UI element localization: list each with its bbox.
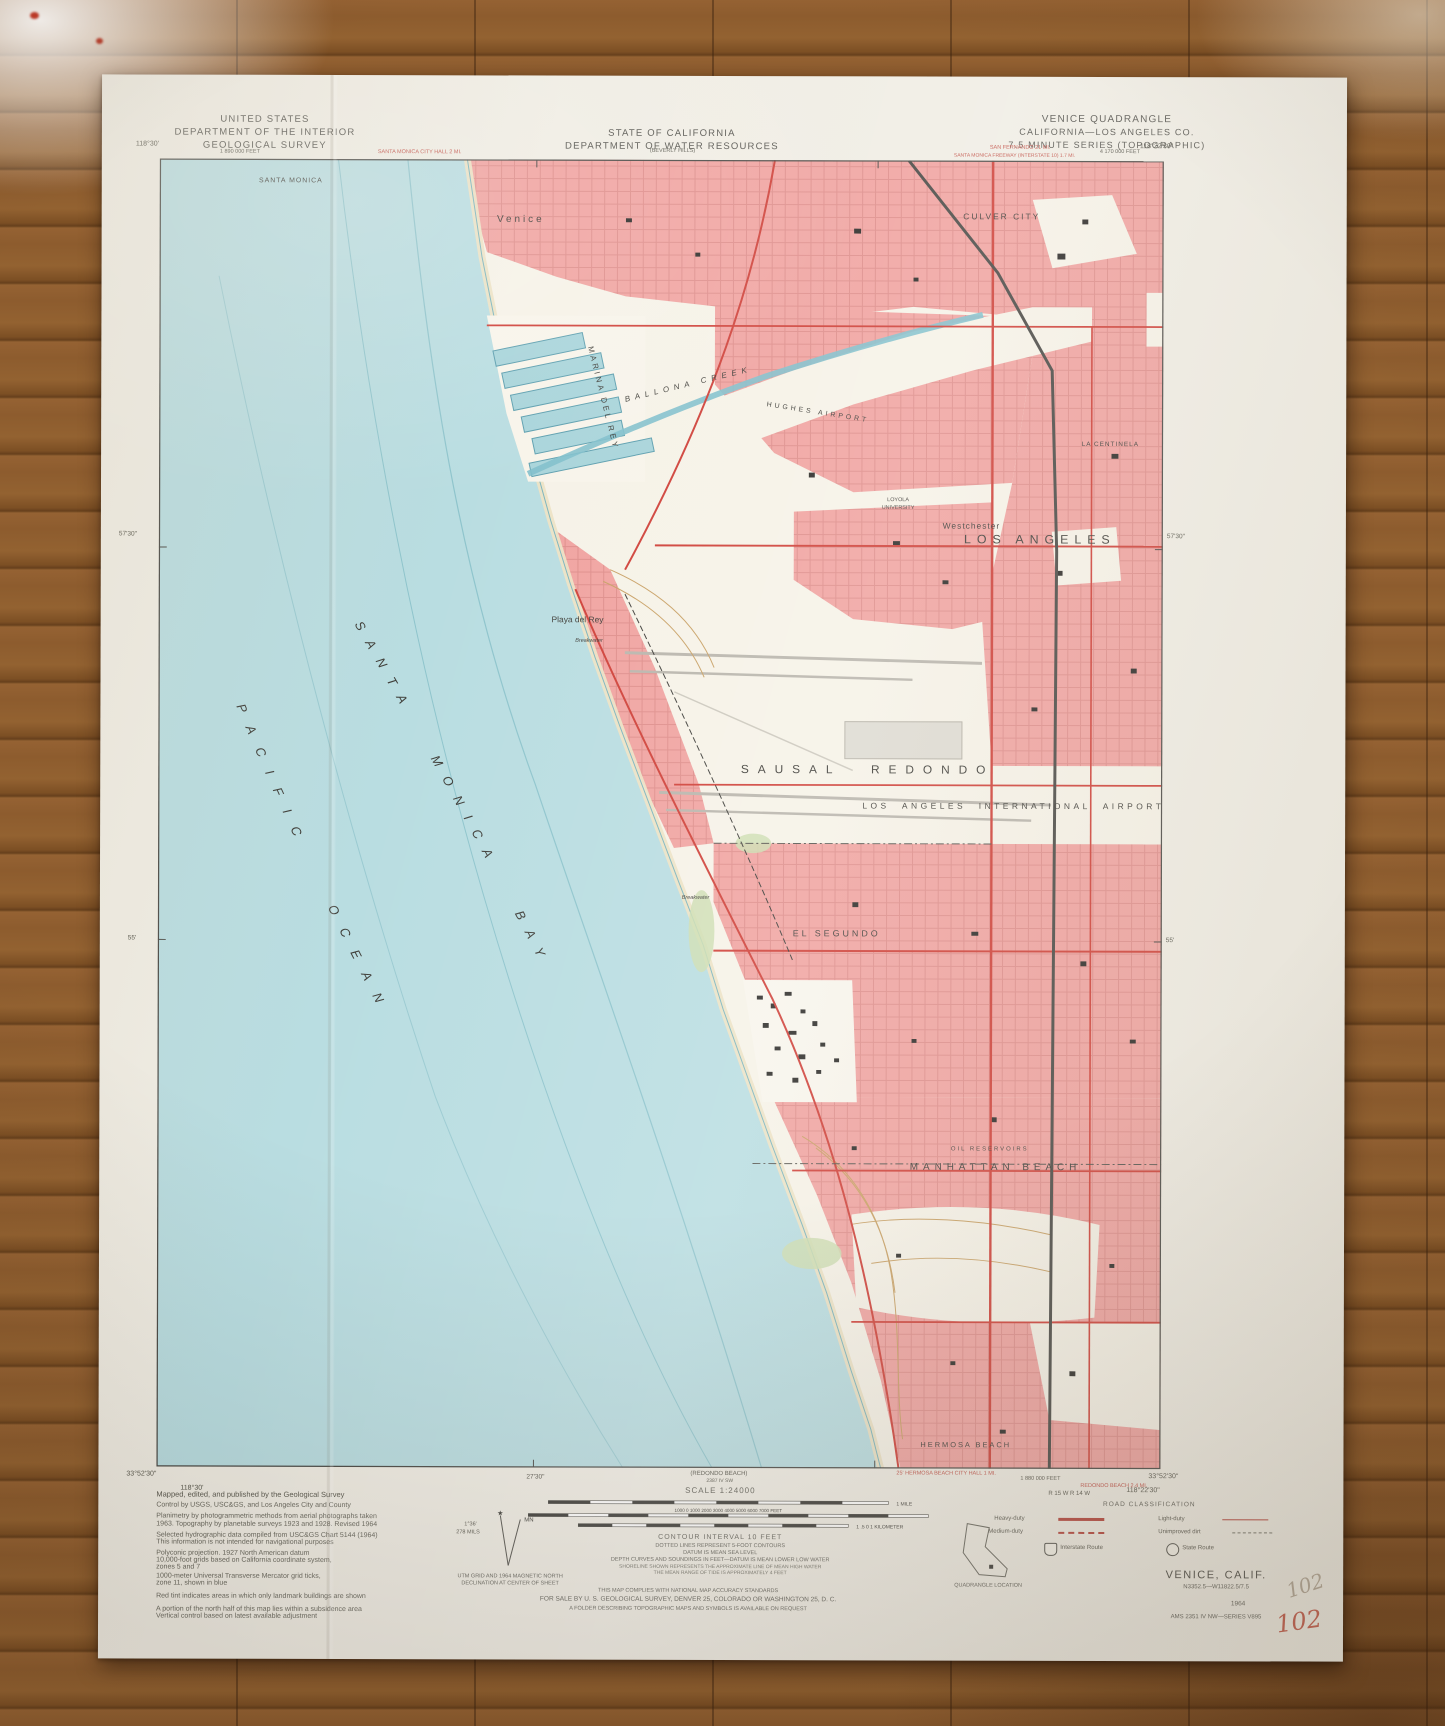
header-state-line1: STATE OF CALIFORNIA: [532, 126, 812, 140]
label-lax: LOS ANGELES INTERNATIONAL AIRPORT: [862, 801, 1164, 812]
edge-left-55: 55': [128, 934, 137, 941]
corner-coord-bottom-right-lon: 118°22'30": [1126, 1487, 1159, 1494]
contour-note: THE MEAN RANGE OF TIDE IS APPROXIMATELY …: [510, 1569, 930, 1576]
label-el-segundo: EL SEGUNDO: [793, 928, 881, 938]
scale-bars: 1 MILE 1000 0 1000 2000 3000 4000 5000 6…: [518, 1497, 938, 1534]
credit-line: Vertical control based on latest availab…: [156, 1613, 317, 1621]
declination-caption-2: DECLINATION AT CENTER OF SHEET: [430, 1580, 590, 1586]
label-playa-del-rey: Playa del Rey: [552, 614, 605, 624]
contour-note: CONTOUR INTERVAL 10 FEET: [510, 1533, 930, 1541]
margin-redondo-ref2: 2387 IV SW: [706, 1478, 733, 1484]
contour-note: DEPTH CURVES AND SOUNDINGS IN FEET—DATUM…: [510, 1556, 930, 1563]
credits-block: Mapped, edited, and published by the Geo…: [102, 74, 1347, 77]
margin-hermosa-city-hall: 25' HERMOSA BEACH CITY HALL 1 MI.: [896, 1470, 995, 1476]
interstate-shield-icon: [1044, 1543, 1057, 1556]
label-sausal-redondo: SAUSAL REDONDO: [741, 762, 994, 777]
label-loyola-university-2: UNIVERSITY: [882, 505, 915, 511]
contour-note: DATUM IS MEAN SEA LEVEL: [510, 1549, 930, 1556]
road-classification: ROAD CLASSIFICATION Heavy-duty Light-dut…: [102, 74, 1347, 77]
road-class-unimproved-label: Unimproved dirt: [1158, 1529, 1200, 1535]
svg-text:1 MILE: 1 MILE: [896, 1501, 913, 1507]
credit-line: zones 5 and 7: [156, 1564, 200, 1572]
scalebar-feet: 1000 0 1000 2000 3000 4000 5000 6000 700…: [528, 1507, 928, 1517]
corner-coord-bottom-right-lat: 33°52'30": [1148, 1473, 1178, 1480]
road-class-interstate-label: Interstate Route: [1060, 1545, 1103, 1551]
quad-location-label: QUADRANGLE LOCATION: [928, 1583, 1048, 1589]
svg-text:★: ★: [497, 1509, 503, 1517]
quadrangle-marker: [989, 1565, 993, 1569]
label-westchester: Westchester: [943, 521, 1001, 531]
state-route-circle-icon: [1166, 1543, 1179, 1556]
header-agency: UNITED STATES DEPARTMENT OF THE INTERIOR…: [120, 112, 410, 152]
road-class-title: ROAD CLASSIFICATION: [1044, 1501, 1254, 1509]
header-agency-line2: DEPARTMENT OF THE INTERIOR: [120, 125, 410, 139]
margin-beverly-hills: (BEVERLY HILLS): [650, 148, 695, 154]
header-agency-line3: GEOLOGICAL SURVEY: [120, 138, 410, 152]
road-class-heavy-sample: [1058, 1518, 1104, 1521]
label-breakwater-2: Breakwater: [682, 895, 710, 901]
photo-of-topo-map: UNITED STATES DEPARTMENT OF THE INTERIOR…: [0, 0, 1445, 1726]
header-quad-line1: VENICE QUADRANGLE: [957, 113, 1257, 127]
header-agency-line1: UNITED STATES: [120, 112, 410, 126]
margin-range-labels: R 15 W R 14 W: [1048, 1491, 1090, 1497]
scalebar-km: 1 .5 0 1 KILOMETER: [578, 1524, 903, 1531]
road-class-state-label: State Route: [1182, 1545, 1214, 1551]
map-area: SANTA MONICA Venice CULVER CITY BALLONA …: [156, 159, 1163, 1470]
edge-bottom-2730: 27'30": [526, 1473, 544, 1480]
credit-line: Control by USGS, USC&GS, and Los Angeles…: [156, 1502, 351, 1511]
margin-redondo-ref: (REDONDO BEACH): [690, 1471, 747, 1477]
road-class-medium-label: Medium-duty: [988, 1529, 1023, 1535]
credit-line: 1963. Topography by planetable surveys 1…: [156, 1521, 377, 1530]
credit-line: zone 11, shown in blue: [156, 1580, 227, 1588]
corner-coord-top-right: 118°22'30": [1140, 143, 1173, 150]
corner-coord-top-left: 118°30': [136, 140, 159, 147]
label-manhattan-beach: MANHATTAN BEACH: [910, 1162, 1081, 1173]
road-class-light-label: Light-duty: [1158, 1516, 1184, 1522]
grid-feet-top-right: 4 170 000 FEET: [1100, 149, 1140, 155]
label-breakwater-1: Breakwater: [575, 638, 603, 644]
edge-right-55: 55': [1166, 937, 1175, 944]
accuracy-note: THIS MAP COMPLIES WITH NATIONAL MAP ACCU…: [478, 1587, 898, 1594]
corner-coord-bottom-left-lat: 33°52'30": [126, 1470, 156, 1477]
credit-line: Red tint indicates areas in which only l…: [156, 1593, 366, 1602]
edge-right-5730: 57'30": [1167, 533, 1185, 540]
label-venice: Venice: [497, 214, 545, 225]
label-loyola-university-1: LOYOLA: [887, 497, 909, 503]
map-sheet: UNITED STATES DEPARTMENT OF THE INTERIOR…: [98, 74, 1347, 1661]
grid-feet-bottom: 1 880 000 FEET: [1020, 1476, 1060, 1482]
label-la-centinela: LA CENTINELA: [1082, 441, 1139, 448]
label-oil-reservoirs: OIL RESERVOIRS: [951, 1146, 1029, 1152]
svg-text:1 .5 0 1 KILOMETER: 1 .5 0 1 KILOMETER: [856, 1524, 903, 1530]
road-class-unimproved-sample: [1232, 1532, 1272, 1533]
sale-note: FOR SALE BY U. S. GEOLOGICAL SURVEY, DEN…: [428, 1595, 948, 1603]
declination-mils: 278 MILS: [456, 1529, 480, 1535]
label-hermosa-beach: HERMOSA BEACH: [920, 1440, 1011, 1449]
svg-text:1000 0 1000 2000 3000 4000 500: 1000 0 1000 2000 3000 4000 5000 6000 700…: [675, 1508, 783, 1513]
edge-left-5730: 57'30": [119, 530, 137, 537]
wood-red-speck: [30, 12, 39, 19]
margin-santa-monica-freeway: SANTA MONICA FREEWAY (INTERSTATE 10) 1.7…: [954, 153, 1075, 159]
label-santa-monica: SANTA MONICA: [259, 177, 323, 184]
scalebar-miles: 1 MILE: [548, 1501, 913, 1508]
margin-santa-monica-city-hall: SANTA MONICA CITY HALL 2 MI.: [378, 149, 462, 155]
contour-note: DOTTED LINES REPRESENT 5-FOOT CONTOURS: [510, 1542, 930, 1549]
handwritten-red-number: 102: [1274, 1605, 1323, 1639]
folder-note: A FOLDER DESCRIBING TOPOGRAPHIC MAPS AND…: [478, 1605, 898, 1612]
road-class-heavy-label: Heavy-duty: [994, 1516, 1024, 1522]
road-class-light-sample: [1222, 1519, 1268, 1520]
declination-angle: 1°36': [464, 1521, 476, 1527]
scale-label: SCALE 1:24000: [620, 1486, 820, 1496]
credit-line: This information is not intended for nav…: [156, 1539, 333, 1547]
header-quad-line2: CALIFORNIA—LOS ANGELES CO.: [957, 126, 1257, 140]
label-culver-city: CULVER CITY: [963, 211, 1040, 221]
credit-line: Mapped, edited, and published by the Geo…: [156, 1491, 344, 1499]
label-los-angeles: LOS ANGELES: [964, 532, 1116, 546]
wood-red-speck: [96, 38, 103, 44]
grid-feet-top: 1 890 000 FEET: [220, 149, 260, 155]
road-class-medium-sample: [1058, 1532, 1104, 1534]
margin-san-fernando: SAN FERNANDO 21 MI.: [990, 145, 1051, 151]
